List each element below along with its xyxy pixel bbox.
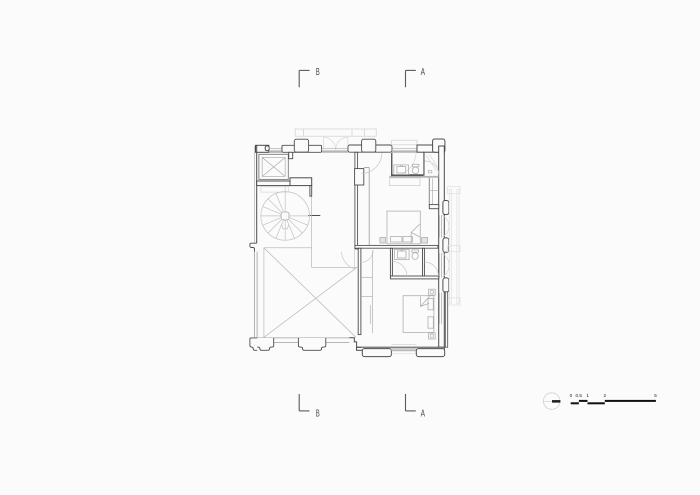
svg-text:A: A bbox=[421, 408, 426, 419]
svg-text:0: 0 bbox=[570, 393, 573, 398]
svg-text:0.5: 0.5 bbox=[576, 393, 583, 398]
svg-text:B: B bbox=[316, 408, 320, 419]
svg-text:2: 2 bbox=[604, 393, 607, 398]
svg-text:5: 5 bbox=[654, 393, 657, 398]
svg-text:A: A bbox=[421, 67, 426, 78]
svg-text:B: B bbox=[316, 67, 320, 78]
svg-text:1: 1 bbox=[586, 393, 589, 398]
